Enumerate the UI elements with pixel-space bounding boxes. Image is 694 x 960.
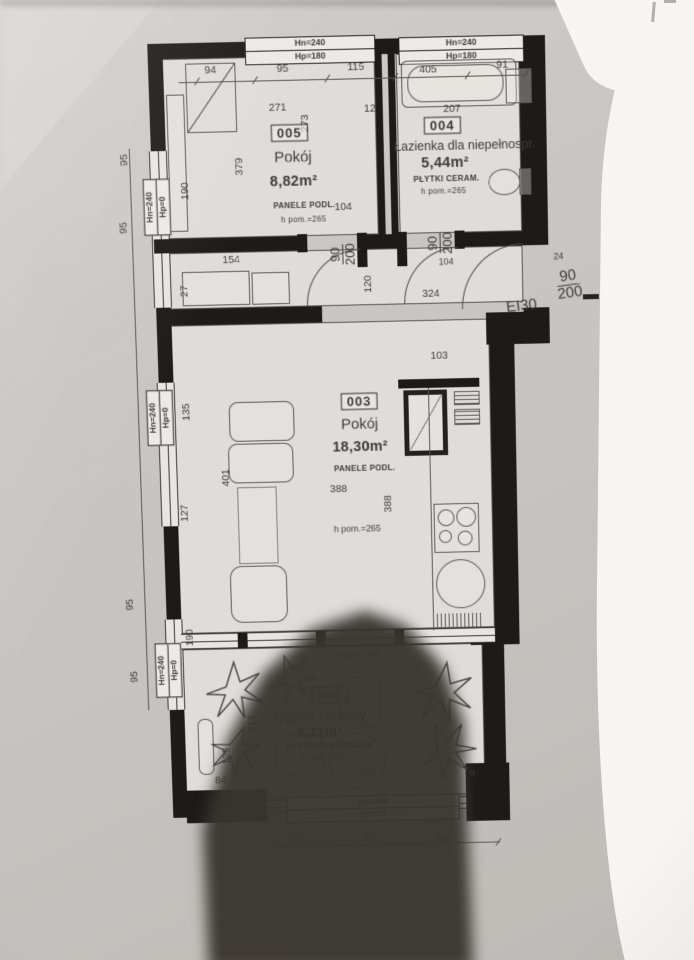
photo-of-floor-plan: Hn=240 Hp=180 Hn=240 Hp=180 Hn=240 Hp=0 … [0,0,694,960]
jamb-door1-a [297,234,307,252]
door-height: 200 [343,243,357,265]
wall-right-mid [489,318,519,630]
hall-cabinet [182,271,251,307]
room-003-height: h pom.=265 [334,524,381,534]
glazing-mullion-2 [316,631,326,647]
dim-125: 125 [221,748,232,765]
door-005-size: 90 200 [328,243,357,266]
room-004-id: 004 [424,116,461,134]
window-label-bottom: Hn=240 Hp=35 [286,793,459,822]
dim-95: 95 [292,831,304,841]
divider-height-label: h pom.=265 [334,650,381,660]
dim-95: 95 [129,671,140,683]
dim-154: 154 [222,254,240,265]
window-hp: Hp=0 [159,391,172,445]
room-004-area: 5,44m² [421,155,469,171]
plant-star-icon [410,658,477,725]
room-003-floor: PANELE PODL. [334,464,395,473]
wall-left-seg3 [164,526,182,619]
dim-271: 271 [269,102,287,113]
dim-95: 95 [125,599,136,611]
dim-120: 120 [363,275,374,293]
dim-9: 9 [470,769,475,778]
table-edge-shadow [0,0,560,6]
door-height: 200 [440,232,454,254]
window-hp: Hp=0 [156,180,170,235]
page-edge [593,0,694,960]
fire-rating-label: EI30 [505,297,537,315]
dim-388: 388 [383,495,394,513]
dim-91: 91 [496,59,508,70]
door-width: 90 [425,233,440,254]
room-006-height: h pom.=265 [300,754,344,763]
room-006-area: 8,11m² [297,725,343,740]
dim-115: 115 [347,61,364,72]
room-005-area: 8,82m² [270,174,318,190]
room-003-name: Pokój [341,416,378,432]
wall-bottom-left-corner [186,789,268,823]
dim-95: 95 [437,834,449,844]
room-005-height: h pom.=265 [281,215,327,224]
paper-corner-highlight [0,0,160,190]
entry-door-size: 90 200 [554,267,583,303]
glazing-mullion-1 [238,632,248,648]
room-003-area: 18,30m² [332,439,388,455]
glazing-mullion-3 [394,629,404,645]
dim-190: 190 [180,182,191,200]
dim-94: 94 [204,65,216,76]
dim-95: 95 [118,222,129,234]
dim-405: 405 [419,64,437,75]
dim-95: 95 [277,63,289,74]
room-005-id: 005 [271,124,308,142]
dim-line-bottom [275,841,500,847]
dim-95: 95 [364,832,376,842]
dim-324: 324 [422,288,440,299]
kitchen-shaft-diagonal [409,396,442,450]
dim-127: 127 [179,504,190,522]
toilet-tank [519,168,531,195]
room-006-id: 006 [311,686,347,703]
jamb-door2-a [397,232,408,267]
dim-285: 285 [359,769,376,779]
print-mark [664,0,676,3]
dim-95: 95 [119,154,130,166]
dim-12: 12 [364,103,376,114]
room-005-floor: PANELE PODL. [273,201,335,210]
room-004-floor: PŁYTKI CERAM. [413,174,479,184]
entry-arrow-dash [583,294,599,299]
window-label-left-lower: Hn=240 Hp=0 [154,643,182,698]
dim-135: 135 [181,403,192,421]
washbasin [505,68,532,103]
window-label-left-middle: Hn=240 Hp=0 [146,390,174,446]
side-table [237,487,279,565]
window-label-left-upper: Hn=240 Hp=0 [143,179,171,236]
armchair-2 [228,443,294,484]
door-height: 200 [557,283,584,302]
kitchen-vent-2 [454,409,480,425]
room-006-name: Ogród zimowy [273,708,367,725]
dim-207: 207 [443,103,461,114]
dim-104: 104 [439,257,454,266]
kitchen-counter-bar [398,378,479,389]
window-hp: Hp=0 [168,644,181,697]
room-004-name: Łazienka dla niepełnospr. [394,137,535,153]
room-004-height: h pom.=265 [421,187,467,196]
window-hp: Hp=35 [288,807,459,822]
dim-tick [282,841,288,849]
dim-379: 379 [234,158,245,176]
hall-wardrobe [251,272,290,305]
dim-tick [496,838,502,846]
plant-star-icon [204,658,264,721]
kitchen-vent-1 [454,391,480,406]
room-005-name: Pokój [274,149,312,165]
dim-84: 84 [215,775,227,785]
armchair-3 [230,565,289,623]
dim-401: 401 [220,469,231,487]
dim-104: 104 [334,201,352,212]
dim-388: 388 [330,484,348,495]
dim-214: 214 [247,715,258,732]
drainer [437,613,482,628]
door-width: 90 [328,244,343,265]
dim-190: 190 [184,629,195,646]
dim-103: 103 [430,350,448,361]
door-004-size: 90 200 [425,232,454,255]
dim-24: 24 [553,252,563,261]
armchair-1 [229,401,295,442]
room-003-id: 003 [341,393,378,411]
dim-27: 27 [179,285,190,297]
